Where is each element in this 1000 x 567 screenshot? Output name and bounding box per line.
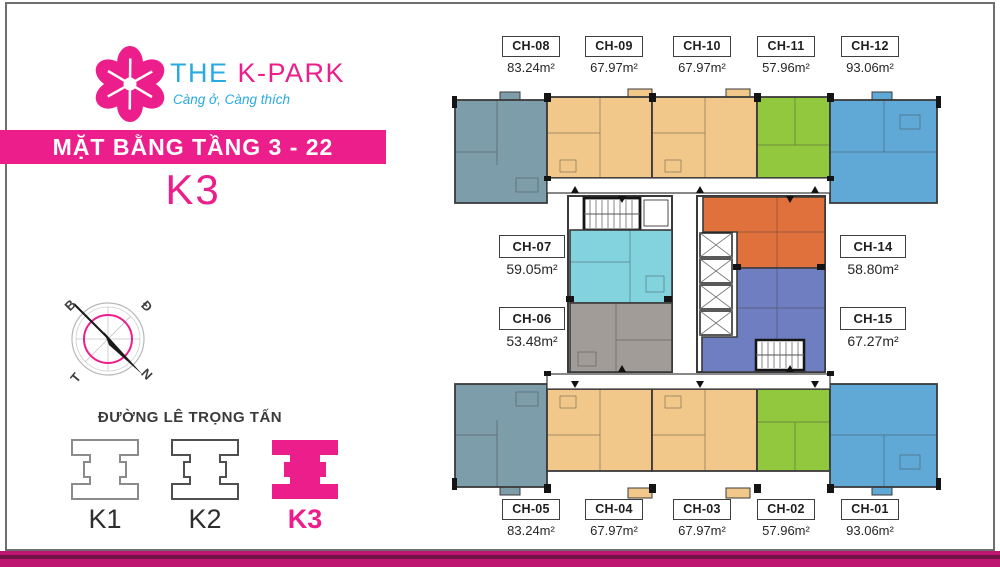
brand-the: THE [170, 58, 229, 88]
unit-shape-ch04[interactable] [547, 389, 652, 471]
tower-footprint-k3-active[interactable] [272, 440, 338, 499]
compass-label-east: Đ [138, 298, 155, 315]
brand-tagline: Càng ở, Càng thích [173, 92, 290, 107]
unit-label-ch15[interactable]: CH-15 67.27m² [840, 307, 906, 349]
unit-id[interactable]: CH-15 [840, 307, 906, 330]
brand-wordmark: THE K-PARK [170, 58, 345, 89]
kpark-flower-logo-icon [84, 42, 176, 126]
unit-area: 67.97m² [585, 60, 643, 75]
tower-label-k2[interactable]: K2 [165, 504, 245, 535]
unit-label-ch11[interactable]: CH-11 57.96m² [757, 36, 815, 75]
unit-area: 67.97m² [673, 60, 731, 75]
unit-area: 67.97m² [585, 523, 643, 538]
unit-area: 67.27m² [840, 333, 906, 349]
unit-id[interactable]: CH-05 [502, 499, 560, 520]
unit-label-ch12[interactable]: CH-12 93.06m² [841, 36, 899, 75]
unit-label-ch10[interactable]: CH-10 67.97m² [673, 36, 731, 75]
unit-id[interactable]: CH-07 [499, 235, 565, 258]
unit-area: 83.24m² [502, 60, 560, 75]
unit-shape-ch12[interactable] [830, 100, 937, 203]
tower-footprints [55, 437, 365, 503]
unit-id[interactable]: CH-04 [585, 499, 643, 520]
floorplan-title-banner: MẶT BẰNG TẦNG 3 - 22 [0, 130, 386, 164]
unit-area: 93.06m² [841, 523, 899, 538]
unit-label-ch14[interactable]: CH-14 58.80m² [840, 235, 906, 277]
unit-shape-ch03[interactable] [652, 389, 757, 471]
unit-area: 58.80m² [840, 261, 906, 277]
unit-id[interactable]: CH-03 [673, 499, 731, 520]
tower-title: K3 [0, 166, 386, 214]
unit-label-ch09[interactable]: CH-09 67.97m² [585, 36, 643, 75]
compass-needle-blade [104, 332, 143, 375]
compass-needle-tail [74, 304, 108, 338]
unit-label-ch05[interactable]: CH-05 83.24m² [502, 499, 560, 538]
top-wing-units [455, 97, 937, 203]
corridor-bottom [547, 374, 830, 389]
compass-rose: B Đ T N [58, 292, 158, 392]
unit-shape-ch08[interactable] [455, 100, 547, 203]
unit-id[interactable]: CH-09 [585, 36, 643, 57]
bottom-wing-units [455, 374, 937, 487]
unit-label-ch01[interactable]: CH-01 93.06m² [841, 499, 899, 538]
footer-accent-bar [0, 551, 1000, 567]
page: THE K-PARK Càng ở, Càng thích MẶT BẰNG T… [0, 0, 1000, 567]
unit-id[interactable]: CH-12 [841, 36, 899, 57]
unit-area: 93.06m² [841, 60, 899, 75]
tower-label-k3[interactable]: K3 [265, 504, 345, 535]
brand-kpark: K-PARK [238, 58, 346, 88]
floorplan-drawing [440, 85, 950, 500]
unit-label-ch04[interactable]: CH-04 67.97m² [585, 499, 643, 538]
unit-area: 53.48m² [499, 333, 565, 349]
unit-area: 57.96m² [757, 60, 815, 75]
tower-footprint-k1[interactable] [72, 440, 138, 499]
corridor-top [547, 178, 830, 193]
unit-id[interactable]: CH-08 [502, 36, 560, 57]
unit-area: 59.05m² [499, 261, 565, 277]
tower-footprint-k2[interactable] [172, 440, 238, 499]
unit-label-ch06[interactable]: CH-06 53.48m² [499, 307, 565, 349]
compass-label-north: B [62, 297, 79, 314]
unit-id[interactable]: CH-01 [841, 499, 899, 520]
unit-label-ch07[interactable]: CH-07 59.05m² [499, 235, 565, 277]
unit-shape-ch02[interactable] [757, 389, 830, 471]
unit-id[interactable]: CH-02 [757, 499, 815, 520]
unit-label-ch08[interactable]: CH-08 83.24m² [502, 36, 560, 75]
unit-shape-ch10[interactable] [652, 97, 757, 178]
unit-shape-ch09[interactable] [547, 97, 652, 178]
unit-shape-ch06[interactable] [570, 303, 672, 372]
unit-id[interactable]: CH-06 [499, 307, 565, 330]
compass-label-south: N [138, 366, 155, 383]
tower-label-k1[interactable]: K1 [65, 504, 145, 535]
unit-shape-ch11[interactable] [757, 97, 830, 178]
unit-area: 57.96m² [757, 523, 815, 538]
vestibule [644, 200, 668, 226]
unit-id[interactable]: CH-14 [840, 235, 906, 258]
unit-shape-ch01[interactable] [830, 384, 937, 487]
unit-label-ch03[interactable]: CH-03 67.97m² [673, 499, 731, 538]
street-name-label: ĐƯỜNG LÊ TRỌNG TẤN [35, 409, 345, 426]
unit-id[interactable]: CH-11 [757, 36, 815, 57]
unit-shape-ch05[interactable] [455, 384, 547, 487]
unit-label-ch02[interactable]: CH-02 57.96m² [757, 499, 815, 538]
unit-id[interactable]: CH-10 [673, 36, 731, 57]
unit-area: 67.97m² [673, 523, 731, 538]
compass-label-west: T [67, 370, 84, 386]
flower-center [124, 78, 137, 91]
unit-area: 83.24m² [502, 523, 560, 538]
